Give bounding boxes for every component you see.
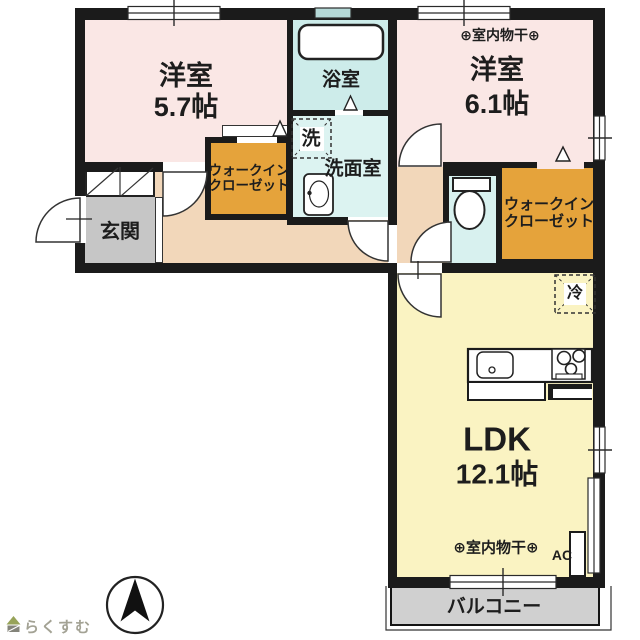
- label-bedroom1-name: 洋室: [159, 61, 213, 91]
- wall-bed1-bottom: [75, 162, 163, 172]
- label-wic1: ウォークイン クローゼット: [209, 163, 290, 193]
- label-bedroom1-size: 5.7帖: [154, 92, 219, 122]
- label-wic1-line1: ウォークイン: [209, 163, 290, 178]
- label-wic2-line2: クローゼット: [504, 214, 594, 231]
- compass-icon: [107, 577, 163, 633]
- entrance-opening: [74, 196, 86, 243]
- room-bathroom: [293, 20, 388, 110]
- north-arrow: [121, 579, 150, 622]
- label-bathroom: 浴室: [322, 69, 360, 90]
- label-wic2: ウォークイン クローゼット: [504, 197, 594, 231]
- label-ldk-size: 12.1帖: [456, 458, 539, 489]
- entrance-step: [155, 197, 163, 263]
- wall-corridor-bottom-a: [75, 263, 397, 273]
- wall-toilet-left: [443, 176, 449, 225]
- wic1-opening: [237, 137, 277, 143]
- label-bedroom2-name: 洋室: [470, 55, 524, 85]
- label-wic1-line2: クローゼット: [209, 178, 290, 193]
- wic2-opening: [537, 162, 584, 169]
- wall-toilet-top: [443, 167, 498, 176]
- wall-ldk-bottom-b: [556, 577, 605, 588]
- wall-top: [75, 8, 605, 20]
- label-ldk-name: LDK: [463, 422, 531, 459]
- label-ldk-drying: ⊕室内物干⊕: [453, 541, 538, 558]
- wall-right: [593, 8, 605, 588]
- label-ac: AC: [552, 548, 572, 564]
- closet-door-panel: [222, 125, 292, 137]
- wall-corridor-bottom-b: [442, 263, 605, 273]
- label-bedroom2-drying: ⊕室内物干⊕: [460, 28, 539, 44]
- room-toilet: [447, 176, 496, 263]
- logo-text: らくすむ: [24, 616, 92, 637]
- label-entrance: 玄関: [100, 221, 140, 243]
- floor-plan: 洋室 5.7帖 ⊕室内物干⊕ 洋室 6.1帖 浴室 洗 洗面室 ウォークイン ク…: [0, 0, 640, 640]
- logo-house-icon: [7, 616, 21, 632]
- wall-ldk-bottom-a: [388, 577, 450, 588]
- wall-ldk-left: [388, 263, 397, 588]
- label-washer-mark: 洗: [301, 128, 320, 149]
- wall-bath-bed2: [388, 8, 397, 225]
- label-wic2-line1: ウォークイン: [504, 197, 594, 214]
- label-balcony: バルコニー: [447, 596, 542, 617]
- wall-bath-bottom-b: [363, 110, 390, 116]
- corridor-hall: [397, 167, 447, 263]
- label-fridge-mark: 冷: [567, 285, 583, 303]
- corridor-main: [155, 220, 388, 263]
- wall-bath-bottom-a: [287, 110, 335, 116]
- label-bedroom2-size: 6.1帖: [465, 89, 530, 119]
- label-washroom: 洗面室: [324, 158, 381, 179]
- wall-wash-bottom: [287, 217, 348, 225]
